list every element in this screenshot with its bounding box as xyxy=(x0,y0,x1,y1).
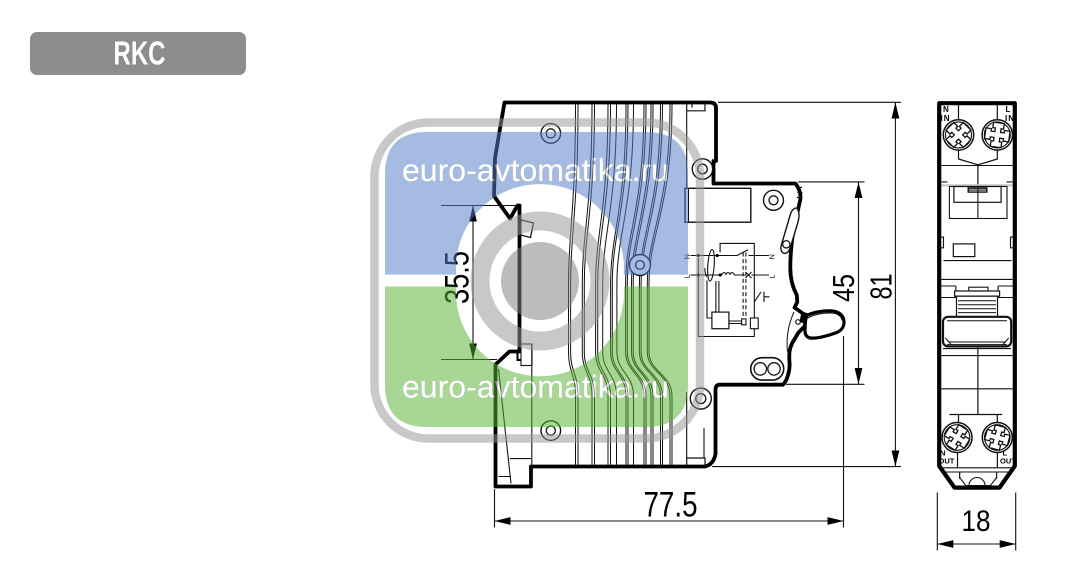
svg-text:81: 81 xyxy=(864,274,899,300)
svg-text:IN: IN xyxy=(1005,114,1015,123)
svg-text:45: 45 xyxy=(826,274,861,302)
svg-text:euro-avtomatika.ru: euro-avtomatika.ru xyxy=(402,369,669,405)
svg-text:L: L xyxy=(683,274,692,278)
svg-text:L: L xyxy=(768,274,777,278)
svg-text:L: L xyxy=(1006,105,1011,114)
svg-text:N: N xyxy=(768,254,777,259)
svg-text:N: N xyxy=(943,105,949,114)
svg-text:RKC: RKC xyxy=(114,35,166,72)
svg-text:OUT: OUT xyxy=(939,457,955,466)
svg-text:18: 18 xyxy=(962,505,991,538)
svg-text:euro-avtomatika.ru: euro-avtomatika.ru xyxy=(402,152,669,188)
svg-text:IN: IN xyxy=(941,114,951,123)
svg-text:77.5: 77.5 xyxy=(644,485,698,525)
svg-text:OUT: OUT xyxy=(1000,457,1016,466)
